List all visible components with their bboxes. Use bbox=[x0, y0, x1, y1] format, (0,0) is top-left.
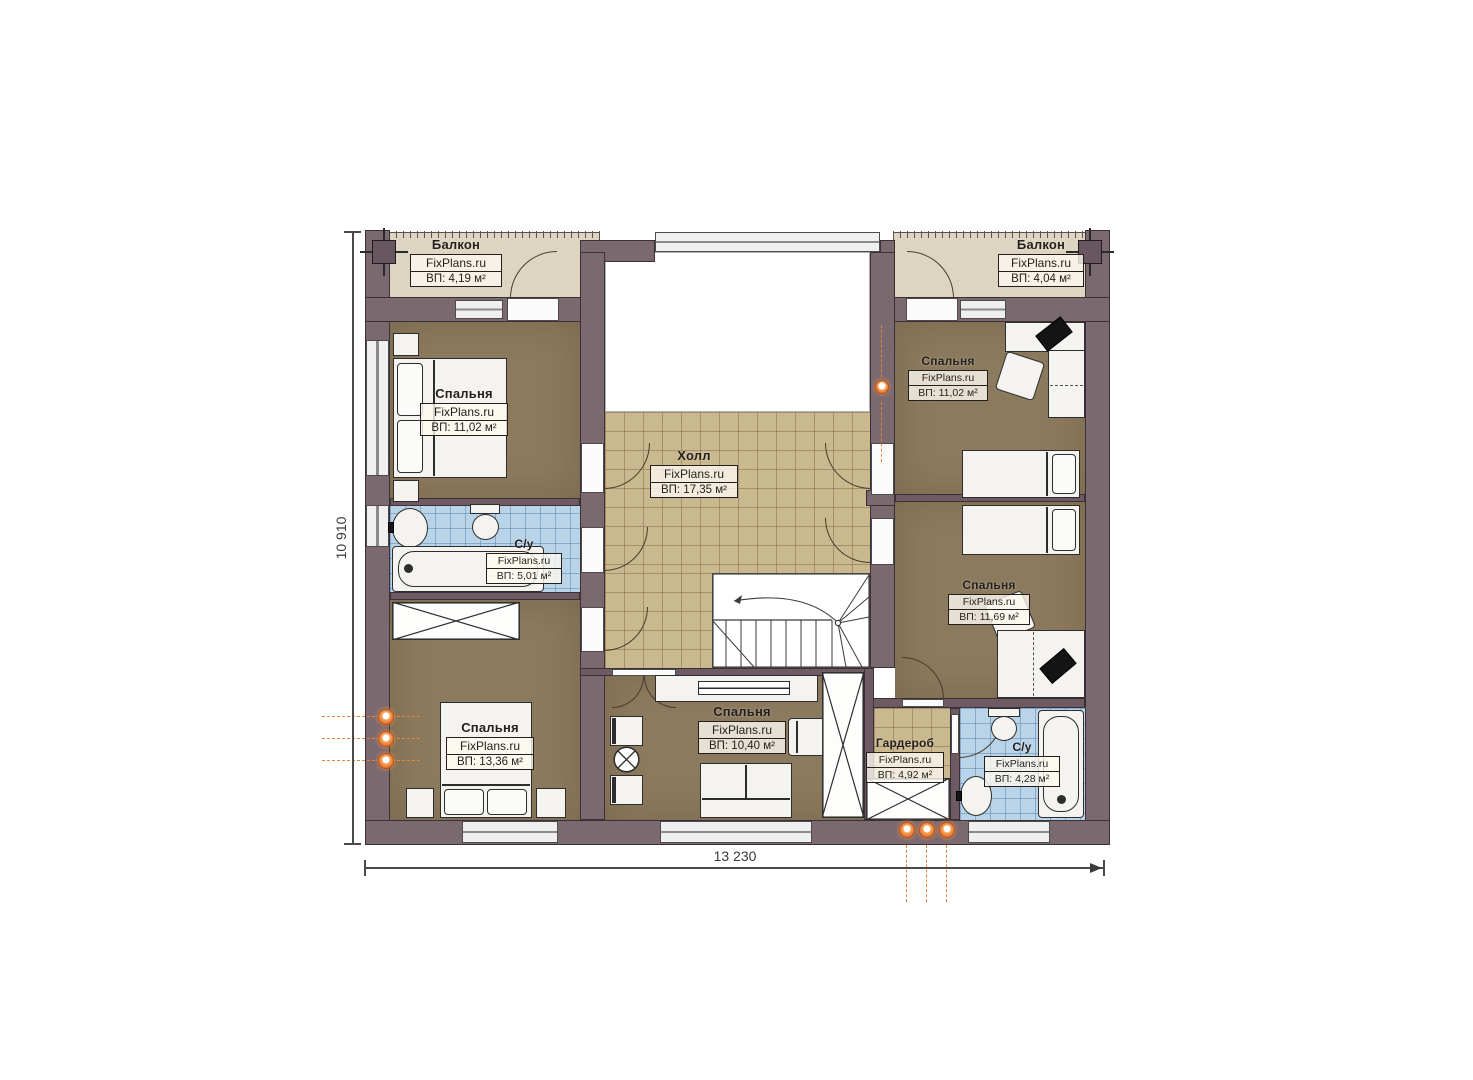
door-hall-bedroomBL bbox=[581, 607, 604, 652]
watermark-text: FixPlans.ru bbox=[487, 554, 561, 569]
door-balcony-right bbox=[906, 298, 958, 321]
closet-icon bbox=[822, 672, 864, 818]
heating-pipe-line bbox=[946, 845, 947, 902]
door-hall-bedroomTR bbox=[871, 443, 894, 495]
watermark-text: FixPlans.ru bbox=[651, 466, 737, 483]
dimension-tick bbox=[344, 231, 361, 233]
room-info-box: FixPlans.ru ВП: 4,19 м² bbox=[410, 254, 502, 287]
door-balcony-left bbox=[507, 298, 559, 321]
nightstand bbox=[406, 788, 434, 818]
blanket-line bbox=[1046, 507, 1048, 553]
watermark-text: FixPlans.ru bbox=[699, 722, 785, 739]
room-area: ВП: 4,19 м² bbox=[411, 272, 501, 286]
heating-pipe-line bbox=[322, 716, 420, 717]
watermark-text: FixPlans.ru bbox=[867, 753, 943, 768]
room-name: Спальня bbox=[948, 578, 1030, 592]
room-name: Балкон bbox=[410, 237, 502, 252]
wall-right-outer bbox=[1085, 230, 1110, 845]
desk-dashed-line bbox=[1050, 385, 1083, 386]
room-label-wardrobe: Гардероб FixPlans.ru ВП: 4,92 м² bbox=[866, 736, 944, 783]
chair-back bbox=[612, 777, 616, 803]
room-label-bathroom-right: С/у FixPlans.ru ВП: 4,28 м² bbox=[984, 740, 1060, 787]
watermark-text: FixPlans.ru bbox=[421, 404, 507, 421]
window-bottom-bathroomR bbox=[968, 821, 1050, 843]
toilet-icon bbox=[991, 716, 1017, 741]
chair-back bbox=[612, 718, 616, 744]
room-info-box: FixPlans.ru ВП: 11,02 м² bbox=[420, 403, 508, 436]
desk-return bbox=[1048, 350, 1085, 418]
room-name: С/у bbox=[984, 740, 1060, 754]
room-area: ВП: 11,02 м² bbox=[909, 386, 987, 400]
partition-bathroom-bedroomBL bbox=[390, 592, 580, 600]
room-info-box: FixPlans.ru ВП: 13,36 м² bbox=[446, 737, 534, 770]
door-hall-bedroomMR bbox=[871, 518, 894, 565]
window-left-bathroom bbox=[366, 505, 389, 547]
room-area: ВП: 10,40 м² bbox=[699, 739, 785, 753]
door-hall-bedroomTL bbox=[581, 443, 604, 493]
room-area: ВП: 4,92 м² bbox=[867, 768, 943, 782]
watermark-text: FixPlans.ru bbox=[447, 738, 533, 755]
room-info-box: FixPlans.ru ВП: 4,28 м² bbox=[984, 756, 1060, 787]
window-balconyR-bedroom bbox=[960, 300, 1006, 319]
room-label-bedroom-bottom-left: Спальня FixPlans.ru ВП: 13,36 м² bbox=[446, 720, 534, 770]
room-name: Спальня bbox=[908, 354, 988, 368]
nightstand bbox=[393, 333, 419, 356]
room-area: ВП: 11,69 м² bbox=[949, 610, 1029, 624]
room-info-box: FixPlans.ru ВП: 4,04 м² bbox=[998, 254, 1084, 287]
door-bedroomMR-wardrobe bbox=[902, 699, 944, 707]
heating-pipe-line bbox=[881, 325, 882, 377]
room-area: ВП: 5,01 м² bbox=[487, 569, 561, 583]
heating-pipe-line bbox=[906, 845, 907, 902]
drain-icon bbox=[404, 564, 413, 573]
room-area: ВП: 17,35 м² bbox=[651, 483, 737, 497]
room-area: ВП: 13,36 м² bbox=[447, 755, 533, 769]
axis-pillar-left bbox=[372, 240, 396, 264]
heating-riser-icon bbox=[875, 380, 889, 394]
floor-plan-page: Балкон FixPlans.ru ВП: 4,19 м² Балкон Fi… bbox=[0, 0, 1473, 1080]
heating-pipe-line bbox=[322, 760, 420, 761]
watermark-text: FixPlans.ru bbox=[909, 371, 987, 386]
pillow bbox=[444, 789, 484, 815]
room-info-box: FixPlans.ru ВП: 5,01 м² bbox=[486, 553, 562, 584]
watermark-text: FixPlans.ru bbox=[985, 757, 1059, 772]
room-name: Гардероб bbox=[866, 736, 944, 750]
window-balconyL-bedroom bbox=[455, 300, 503, 319]
room-label-bedroom-bottom-center: Спальня FixPlans.ru ВП: 10,40 м² bbox=[698, 704, 786, 754]
dimension-line-vertical bbox=[352, 232, 354, 845]
tv-icon bbox=[698, 681, 790, 695]
partition-bedroomMR-wardrobe bbox=[866, 698, 1085, 708]
window-bottom-bedroomBL bbox=[462, 821, 558, 843]
room-label-balcony-right: Балкон FixPlans.ru ВП: 4,04 м² bbox=[998, 237, 1084, 287]
room-name: С/у bbox=[486, 537, 562, 551]
heating-riser-icon bbox=[939, 822, 955, 838]
room-area: ВП: 4,28 м² bbox=[985, 772, 1059, 786]
room-label-bathroom-left: С/у FixPlans.ru ВП: 5,01 м² bbox=[486, 537, 562, 584]
pillow bbox=[487, 789, 527, 815]
open-void-above bbox=[605, 252, 870, 412]
room-name: Спальня bbox=[446, 720, 534, 735]
sofa-cushion-line bbox=[745, 765, 747, 798]
heating-pipe-line bbox=[881, 402, 882, 462]
room-info-box: FixPlans.ru ВП: 17,35 м² bbox=[650, 465, 738, 498]
round-table-icon bbox=[613, 746, 640, 773]
room-info-box: FixPlans.ru ВП: 11,02 м² bbox=[908, 370, 988, 401]
room-area: ВП: 4,04 м² bbox=[999, 272, 1083, 286]
closet-icon bbox=[392, 602, 520, 640]
dimension-arrow-icon bbox=[1090, 863, 1102, 873]
room-label-hall: Холл FixPlans.ru ВП: 17,35 м² bbox=[650, 448, 738, 498]
door-wardrobe-bathroomR bbox=[951, 714, 959, 754]
blanket-line bbox=[442, 784, 530, 786]
pillow bbox=[1052, 454, 1076, 494]
room-label-balcony-left: Балкон FixPlans.ru ВП: 4,19 м² bbox=[410, 237, 502, 287]
room-name: Балкон bbox=[998, 237, 1084, 252]
heating-riser-icon bbox=[919, 822, 935, 838]
toilet-tank bbox=[470, 504, 500, 514]
watermark-text: FixPlans.ru bbox=[999, 255, 1083, 272]
watermark-text: FixPlans.ru bbox=[949, 595, 1029, 610]
heating-pipe-line bbox=[322, 738, 420, 739]
blanket-line bbox=[1046, 452, 1048, 496]
room-label-bedroom-mid-right: Спальня FixPlans.ru ВП: 11,69 м² bbox=[948, 578, 1030, 625]
heating-riser-icon bbox=[899, 822, 915, 838]
pillow bbox=[1052, 509, 1076, 551]
sofa-seat-line bbox=[702, 798, 790, 800]
armchair-line bbox=[796, 721, 798, 753]
drain-icon bbox=[1057, 795, 1066, 804]
watermark-text: FixPlans.ru bbox=[411, 255, 501, 272]
dimension-tick bbox=[344, 843, 361, 845]
room-area: ВП: 11,02 м² bbox=[421, 421, 507, 435]
window-top-center bbox=[655, 232, 880, 252]
room-label-bedroom-top-right: Спальня FixPlans.ru ВП: 11,02 м² bbox=[908, 354, 988, 401]
heating-riser-icon bbox=[378, 753, 394, 769]
room-info-box: FixPlans.ru ВП: 11,69 м² bbox=[948, 594, 1030, 625]
room-info-box: FixPlans.ru ВП: 4,92 м² bbox=[866, 752, 944, 783]
dimension-tick bbox=[1103, 860, 1105, 876]
heating-pipe-line bbox=[926, 845, 927, 902]
room-name: Спальня bbox=[420, 386, 508, 401]
window-left-bedroomTL bbox=[366, 340, 389, 476]
dimension-width-label: 13 230 bbox=[680, 848, 790, 864]
room-info-box: FixPlans.ru ВП: 10,40 м² bbox=[698, 721, 786, 754]
window-bottom-bedroomBC bbox=[660, 821, 812, 843]
nightstand bbox=[393, 480, 419, 502]
heating-riser-icon bbox=[378, 709, 394, 725]
closet-icon bbox=[866, 778, 950, 820]
nightstand bbox=[536, 788, 566, 818]
armchair bbox=[788, 718, 826, 756]
sink-icon bbox=[392, 508, 428, 548]
door-hall-bathroomL bbox=[581, 527, 604, 573]
room-name: Спальня bbox=[698, 704, 786, 719]
room-name: Холл bbox=[650, 448, 738, 463]
dimension-height-label: 10 910 bbox=[333, 493, 349, 583]
dimension-tick bbox=[364, 860, 366, 876]
heating-riser-icon bbox=[378, 731, 394, 747]
staircase bbox=[712, 573, 870, 668]
dimension-line-horizontal bbox=[365, 867, 1105, 869]
desk-dashed-line bbox=[1033, 632, 1034, 696]
tap-icon bbox=[956, 791, 962, 801]
room-label-bedroom-top-left: Спальня FixPlans.ru ВП: 11,02 м² bbox=[420, 386, 508, 436]
tap-icon bbox=[388, 522, 394, 533]
